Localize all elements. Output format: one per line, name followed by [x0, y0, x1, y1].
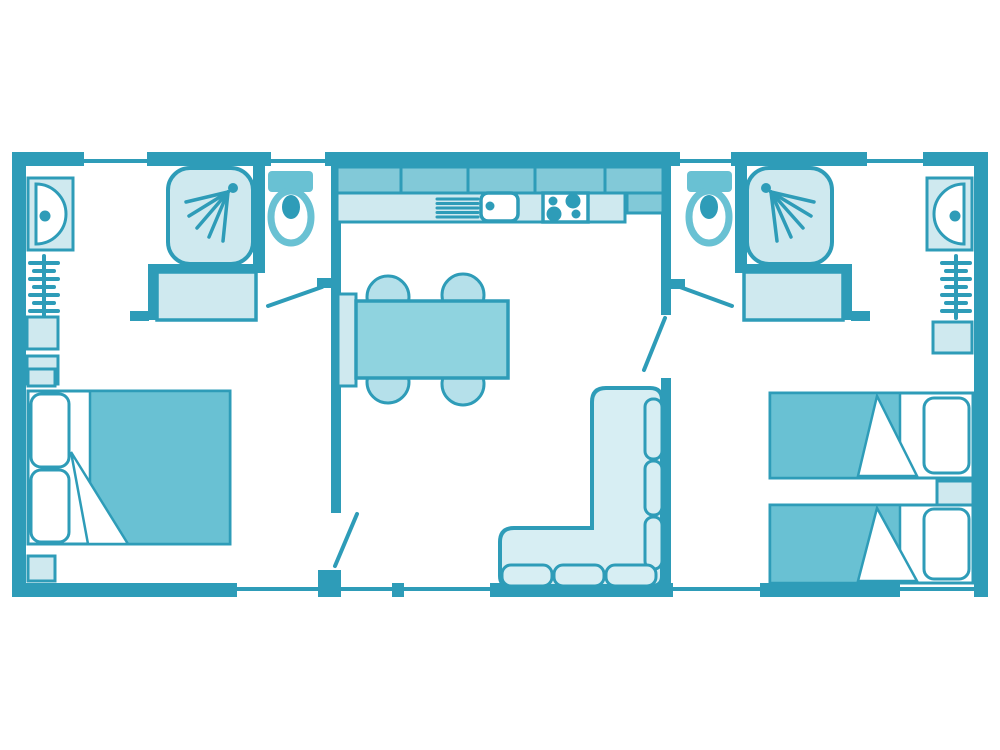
towel-radiator-right [942, 256, 970, 318]
pillow [924, 509, 969, 579]
bedroom-right-furniture [770, 393, 973, 583]
shower-right [747, 168, 832, 264]
wall-north-4 [731, 152, 867, 166]
vanity-right [744, 272, 843, 320]
toilet-seat [700, 195, 718, 219]
bedroom-left-door [335, 514, 357, 566]
wall-north-1 [12, 152, 84, 166]
wc-left-door [268, 287, 322, 306]
nightstand [937, 481, 973, 505]
floorplan-canvas [0, 0, 1000, 750]
corner-sofa [500, 388, 662, 586]
wall-south-door-stub [318, 570, 341, 597]
toilet-left [268, 171, 313, 243]
nightstand-top [28, 369, 55, 386]
dining-table [356, 301, 508, 378]
wall-west [12, 152, 26, 597]
bedroom-right-door [644, 318, 665, 370]
pillow [924, 398, 969, 473]
nightstand-bottom [28, 556, 55, 581]
wash-basin-left [28, 178, 73, 250]
dining-set [338, 274, 508, 405]
basin-drain [40, 211, 51, 222]
wall-north-2 [147, 152, 271, 166]
wall-cabinets [337, 167, 663, 193]
shower-tray [168, 168, 253, 264]
single-bed-2 [770, 505, 973, 583]
wall-south-1 [12, 583, 237, 597]
floorplan-drawing [0, 0, 1000, 750]
wall-south-small-stub [392, 583, 404, 597]
wall-bench [338, 294, 356, 386]
wc-right-door [680, 287, 732, 306]
towel-radiator-left [30, 256, 58, 318]
wash-basin-right [927, 178, 972, 250]
double-bed [28, 391, 230, 544]
wall-under-shower-left-foot [130, 311, 149, 321]
basin-drain [950, 211, 961, 222]
tall-unit [627, 193, 663, 213]
kitchen-units [337, 167, 663, 222]
toilet-seat [282, 195, 300, 219]
vanity-left [157, 272, 256, 320]
sink-tap [486, 202, 495, 211]
shelf-right [933, 322, 972, 353]
bedroom-left-furniture [28, 369, 230, 581]
wall-under-shower-right-foot [851, 311, 870, 321]
pillow-1 [31, 394, 69, 467]
shower-left [168, 168, 253, 264]
hob [543, 193, 588, 222]
shower-tray [747, 168, 832, 264]
sofa-body [500, 388, 662, 586]
shelf-left-1 [27, 317, 58, 349]
sofa-seat-cushions [502, 565, 656, 586]
pillow-2 [31, 470, 69, 542]
single-bed-1 [770, 393, 973, 478]
wall-south-3 [760, 583, 900, 597]
toilet-right [687, 171, 732, 243]
wall-north-3 [325, 152, 680, 166]
sofa-back-cushions [645, 399, 662, 569]
wall-north-5 [923, 152, 988, 166]
wall-east [974, 152, 988, 597]
